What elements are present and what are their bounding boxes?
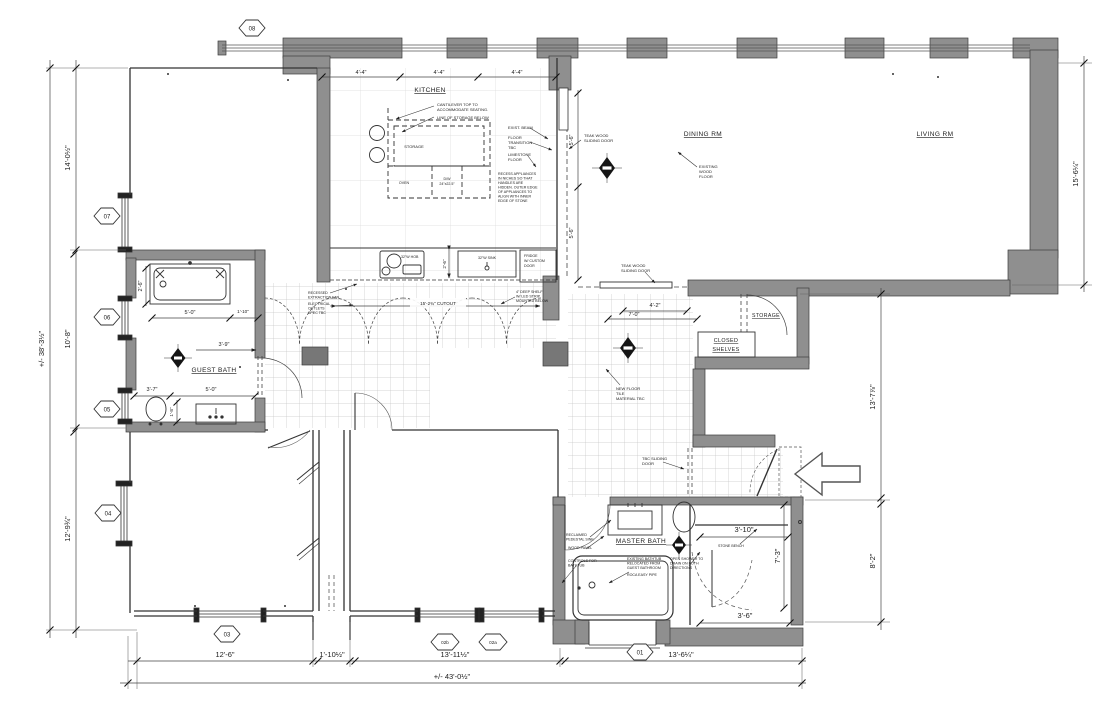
floor-plan-drawing: 08 07 06 05 04 03 02b 02a 01: [0, 0, 1112, 714]
svg-text:05: 05: [104, 407, 111, 413]
entry-nook-floor: [693, 447, 783, 497]
svg-text:04: 04: [105, 511, 112, 517]
marker-05: 05: [94, 401, 120, 417]
note-floor-transition-3: TBC: [508, 145, 516, 150]
note-shelf-3: MOUNTED BELOW: [516, 299, 549, 303]
note-outlets-2: OUTLETS: [308, 307, 325, 311]
fridge-label-1: FRIDGE: [524, 254, 538, 258]
dim-right-hall: 13'-7⅞": [868, 384, 877, 410]
finish-marker-master-bath: [666, 532, 692, 558]
marker-08: 08: [239, 20, 265, 36]
note-open-shower-1: OPEN SHOWER TO: [670, 557, 703, 561]
dim-slider-lower: 5'-6": [569, 227, 575, 238]
note-outlets-1: ELECTRICAL: [308, 302, 330, 306]
dim-mb-shower-w: 3'-10": [734, 525, 753, 534]
dim-bottom-shaft: 1'-10½": [319, 650, 345, 659]
dim-kitchen-top-1: 4'-4": [356, 70, 367, 76]
note-limestone-2: FLOOR: [508, 157, 522, 162]
dim-hall-b: 7'-0": [629, 312, 640, 318]
fridge-label-2: W/ CUSTOM: [524, 259, 545, 263]
island-storage-label: STORAGE: [404, 144, 424, 149]
note-existing-tub-2: RELOCATED FROM: [627, 562, 660, 566]
note-recess-7: EDGE OF STONE: [498, 199, 528, 203]
dim-mb-shower-h: 7'-3": [773, 548, 782, 563]
marker-01: 01: [627, 644, 653, 660]
dim-right-lower: 8'-2": [868, 553, 877, 568]
guest-tub: [150, 262, 230, 304]
dim-hall-a: 4'-2": [650, 303, 661, 309]
master-toilet: [673, 502, 695, 532]
master-vanity: [608, 503, 662, 535]
dim-overall-height: +/- 38'-3½": [37, 330, 46, 367]
note-reclaimed-2: PEDESTAL SINK: [566, 538, 594, 542]
svg-text:06: 06: [104, 315, 111, 321]
finish-marker-guest-bath: [164, 344, 192, 372]
note-recess-6: ALIGN WITH INNER: [498, 195, 532, 199]
guest-vanity: [196, 404, 236, 424]
closed-shelves-box: CLOSED SHELVES: [698, 332, 755, 357]
note-existing-wood-3: FLOOR: [699, 174, 713, 179]
marker-04: 04: [95, 505, 121, 521]
dim-kitchen-top-2: 4'-4": [434, 70, 445, 76]
sink-label: 32"W SINK: [478, 256, 497, 260]
svg-text:CLOSED: CLOSED: [714, 338, 739, 344]
marker-07: 07: [94, 208, 120, 224]
guest-toilet: [146, 397, 166, 425]
dim-gb-tub-l: 5'-0": [185, 310, 196, 316]
room-label-kitchen: KITCHEN: [414, 87, 445, 94]
tub-bay: [585, 622, 660, 648]
dim-slider-upper: 5'-6": [569, 134, 575, 145]
note-recess-3: HANDLES ARE: [498, 181, 524, 185]
note-recess-1: RECESS APPLIANCES: [498, 172, 537, 176]
dw-label-1: D/W: [444, 177, 452, 181]
dim-counter-depth: 2'-6": [442, 259, 447, 269]
dim-right-living: 15'-6¼": [1071, 161, 1080, 187]
bottom-windows: [194, 608, 544, 622]
note-pipe: ROCA EASY PIPE: [627, 573, 657, 577]
svg-text:02a: 02a: [489, 640, 497, 645]
svg-text:02b: 02b: [441, 640, 449, 645]
marker-02b: 02b: [431, 634, 459, 650]
dim-left-bottom: 12'-9¾": [63, 516, 72, 542]
room-label-living: LIVING RM: [917, 131, 954, 138]
note-teak-door-b2: SLIDING DOOR: [621, 268, 650, 273]
note-existing-tub-1: EXISTING BATHTUB: [627, 557, 662, 561]
note-floor-tile-3: MATERIAL TBC: [616, 396, 645, 401]
note-tbc-sliding-2: DOOR: [642, 461, 654, 466]
room-label-storage: STORAGE: [752, 313, 780, 319]
fridge-label-3: DOOR: [524, 264, 535, 268]
dim-gb-vanity: 5'-0": [206, 387, 217, 393]
dim-gb-mid: 3'-9": [219, 342, 230, 348]
corridor-floor: [265, 348, 430, 428]
dw-label-2: 24"x22.5": [439, 182, 455, 186]
room-label-guest-bath: GUEST BATH: [192, 367, 237, 374]
floor-plan: 08 07 06 05 04 03 02b 02a 01: [0, 0, 1112, 714]
dim-mb-door: 3'-6": [738, 611, 753, 620]
room-label-dining: DINING RM: [684, 131, 722, 138]
svg-text:03: 03: [224, 632, 231, 638]
svg-text:SHELVES: SHELVES: [712, 347, 739, 353]
dim-kitchen-cutout: 15'-2¾" CUTOUT: [420, 301, 456, 306]
dim-gb-depth: 1'-8": [169, 407, 174, 417]
finish-marker-dining: [592, 153, 622, 183]
note-recess-2: IN NICHES SO THAT: [498, 177, 533, 181]
hob-label: 32"W HOB: [401, 255, 419, 259]
oven-label: OVEN: [399, 181, 410, 185]
dim-gb-tub-w: 2'-6": [138, 280, 144, 291]
note-outlets-3: SPEC TBC: [308, 311, 326, 315]
marker-06: 06: [94, 309, 120, 325]
svg-text:08: 08: [249, 26, 256, 32]
note-controls-1: CONTROLS FOR: [568, 559, 597, 563]
dim-bottom-left: 12'-6": [215, 650, 234, 659]
note-controls-2: BATHTUB: [568, 564, 585, 568]
dim-bottom-mid: 13'-11½": [441, 650, 470, 659]
note-recess-5: OF APPLIANCES TO: [498, 190, 532, 194]
dim-overall-width: +/- 43'-0½": [434, 672, 471, 681]
note-teak-door-a2: SLIDING DOOR: [584, 138, 613, 143]
dim-bottom-right: 13'-6¼": [668, 650, 694, 659]
note-exist-beam: EXIST. BEAM: [508, 125, 533, 130]
entry-direction-arrow: [795, 453, 860, 495]
note-existing-tub-3: GUEST BATHROOM: [627, 566, 661, 570]
dim-gb-niche: 1'-10": [237, 309, 249, 314]
room-label-master-bath: MASTER BATH: [616, 538, 666, 545]
svg-text:07: 07: [104, 214, 111, 220]
note-cantilever-2: ACCOMMODATE SEATING.: [437, 107, 488, 112]
note-recess-4: HIDDEN. OUTER EDGE: [498, 186, 538, 190]
note-extraction-2: EXTRACTION FAN: [308, 296, 340, 300]
svg-text:01: 01: [637, 650, 644, 656]
marker-02a: 02a: [479, 634, 507, 650]
note-reclaimed-1: RECLAIMED: [566, 533, 587, 537]
note-line-storage: LINE OF STORAGE BELOW: [437, 115, 489, 120]
note-extraction-1: RECESSED: [308, 291, 328, 295]
note-shelf-1: 4" DEEP SHELF: [516, 290, 543, 294]
note-open-shower-2: DRAIN ON BOTH: [670, 562, 699, 566]
note-shelf-2: W/ LED STRIP: [516, 295, 541, 299]
note-open-shower-3: DIRECTIONS: [670, 566, 693, 570]
dim-left-mid: 10'-8": [63, 329, 72, 348]
note-stone-bench: STONE BENCH: [718, 544, 744, 548]
dim-left-top: 14'-0½": [63, 145, 72, 171]
dim-gb-toilet: 3'-7": [147, 387, 158, 393]
marker-03: 03: [214, 626, 240, 642]
dim-kitchen-top-3: 4'-4": [512, 70, 523, 76]
note-wood-panel: WOOD PANEL: [568, 546, 592, 550]
